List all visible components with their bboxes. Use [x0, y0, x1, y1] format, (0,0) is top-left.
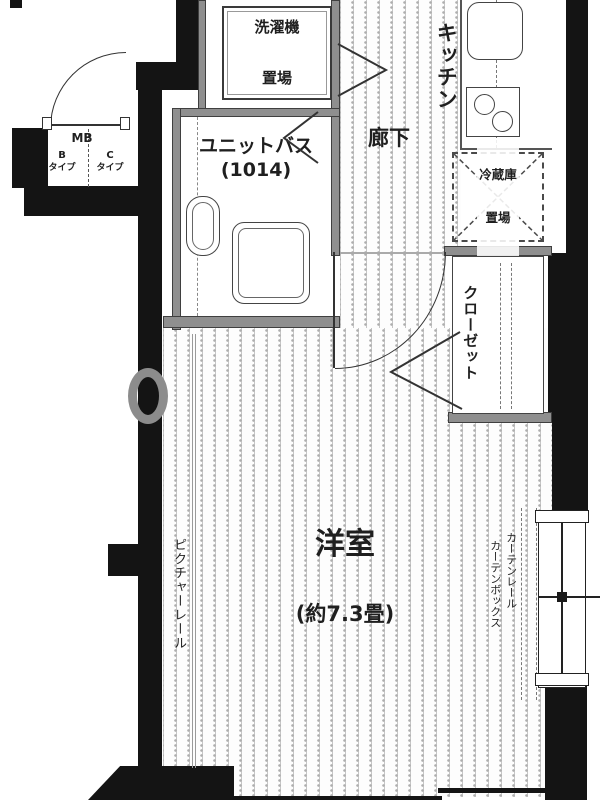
floor-plan: 洗濯機 置場 キッチン 冷蔵庫 置場 廊下 ユニットバス (1014) [0, 0, 600, 800]
window-lock [557, 592, 567, 602]
picture-rail-label: ピクチャーレール [170, 538, 185, 670]
curtain-rail-label: カーテンレール [504, 532, 517, 632]
watermark [128, 368, 168, 424]
window-top-cap [535, 510, 589, 523]
picture-rail-line [192, 334, 196, 768]
bath-door-chevron [284, 112, 318, 163]
main-room-label: 洋室 [290, 528, 400, 563]
curtain-box-label: カーテンボックス [488, 540, 501, 666]
main-room-size-label: (約7.3畳) [290, 602, 400, 626]
window-bottom-cap [535, 673, 589, 686]
door-swing-arrows [0, 0, 600, 800]
room-door-chevron [391, 332, 462, 409]
window-sash-line [538, 596, 600, 598]
laundry-door-chevron [338, 44, 386, 96]
curtain-box-line-1 [521, 508, 522, 700]
curtain-box-line-2 [536, 508, 537, 700]
